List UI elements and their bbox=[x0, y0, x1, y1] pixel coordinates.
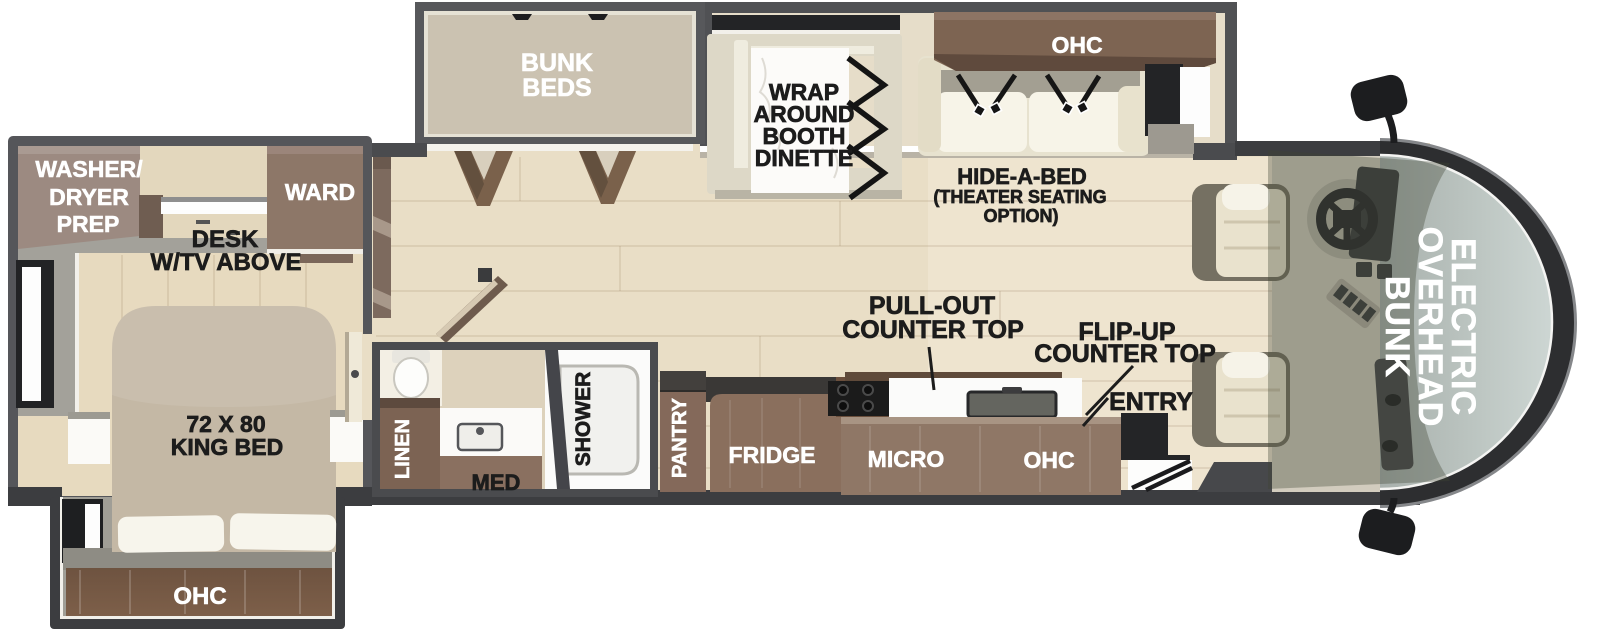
svg-text:BUNK: BUNK bbox=[1378, 276, 1416, 378]
svg-text:OPTION): OPTION) bbox=[984, 206, 1059, 226]
svg-text:PANTRY: PANTRY bbox=[669, 397, 691, 478]
svg-text:OHC: OHC bbox=[173, 583, 226, 610]
svg-text:ENTRY: ENTRY bbox=[1109, 388, 1193, 416]
svg-text:DRYER: DRYER bbox=[49, 184, 129, 210]
svg-text:(THEATER SEATING: (THEATER SEATING bbox=[933, 187, 1106, 207]
svg-text:PREP: PREP bbox=[57, 211, 120, 237]
svg-text:MICRO: MICRO bbox=[868, 446, 945, 472]
svg-text:BUNK: BUNK bbox=[521, 49, 593, 77]
svg-text:MED: MED bbox=[472, 470, 521, 495]
svg-text:HIDE-A-BED: HIDE-A-BED bbox=[957, 164, 1087, 189]
svg-text:OHC: OHC bbox=[1051, 32, 1102, 58]
svg-text:COUNTER TOP: COUNTER TOP bbox=[1034, 340, 1216, 368]
svg-text:DINETTE: DINETTE bbox=[755, 145, 853, 171]
svg-text:W/TV ABOVE: W/TV ABOVE bbox=[150, 249, 301, 276]
svg-text:FRIDGE: FRIDGE bbox=[729, 442, 816, 468]
svg-text:BEDS: BEDS bbox=[522, 74, 591, 102]
svg-text:SHOWER: SHOWER bbox=[572, 372, 595, 467]
svg-text:OHC: OHC bbox=[1023, 447, 1074, 473]
svg-text:LINEN: LINEN bbox=[392, 419, 414, 479]
svg-text:COUNTER TOP: COUNTER TOP bbox=[842, 316, 1024, 344]
svg-text:WARD: WARD bbox=[285, 179, 355, 205]
svg-text:WASHER/: WASHER/ bbox=[35, 156, 143, 182]
svg-text:KING BED: KING BED bbox=[171, 434, 283, 460]
